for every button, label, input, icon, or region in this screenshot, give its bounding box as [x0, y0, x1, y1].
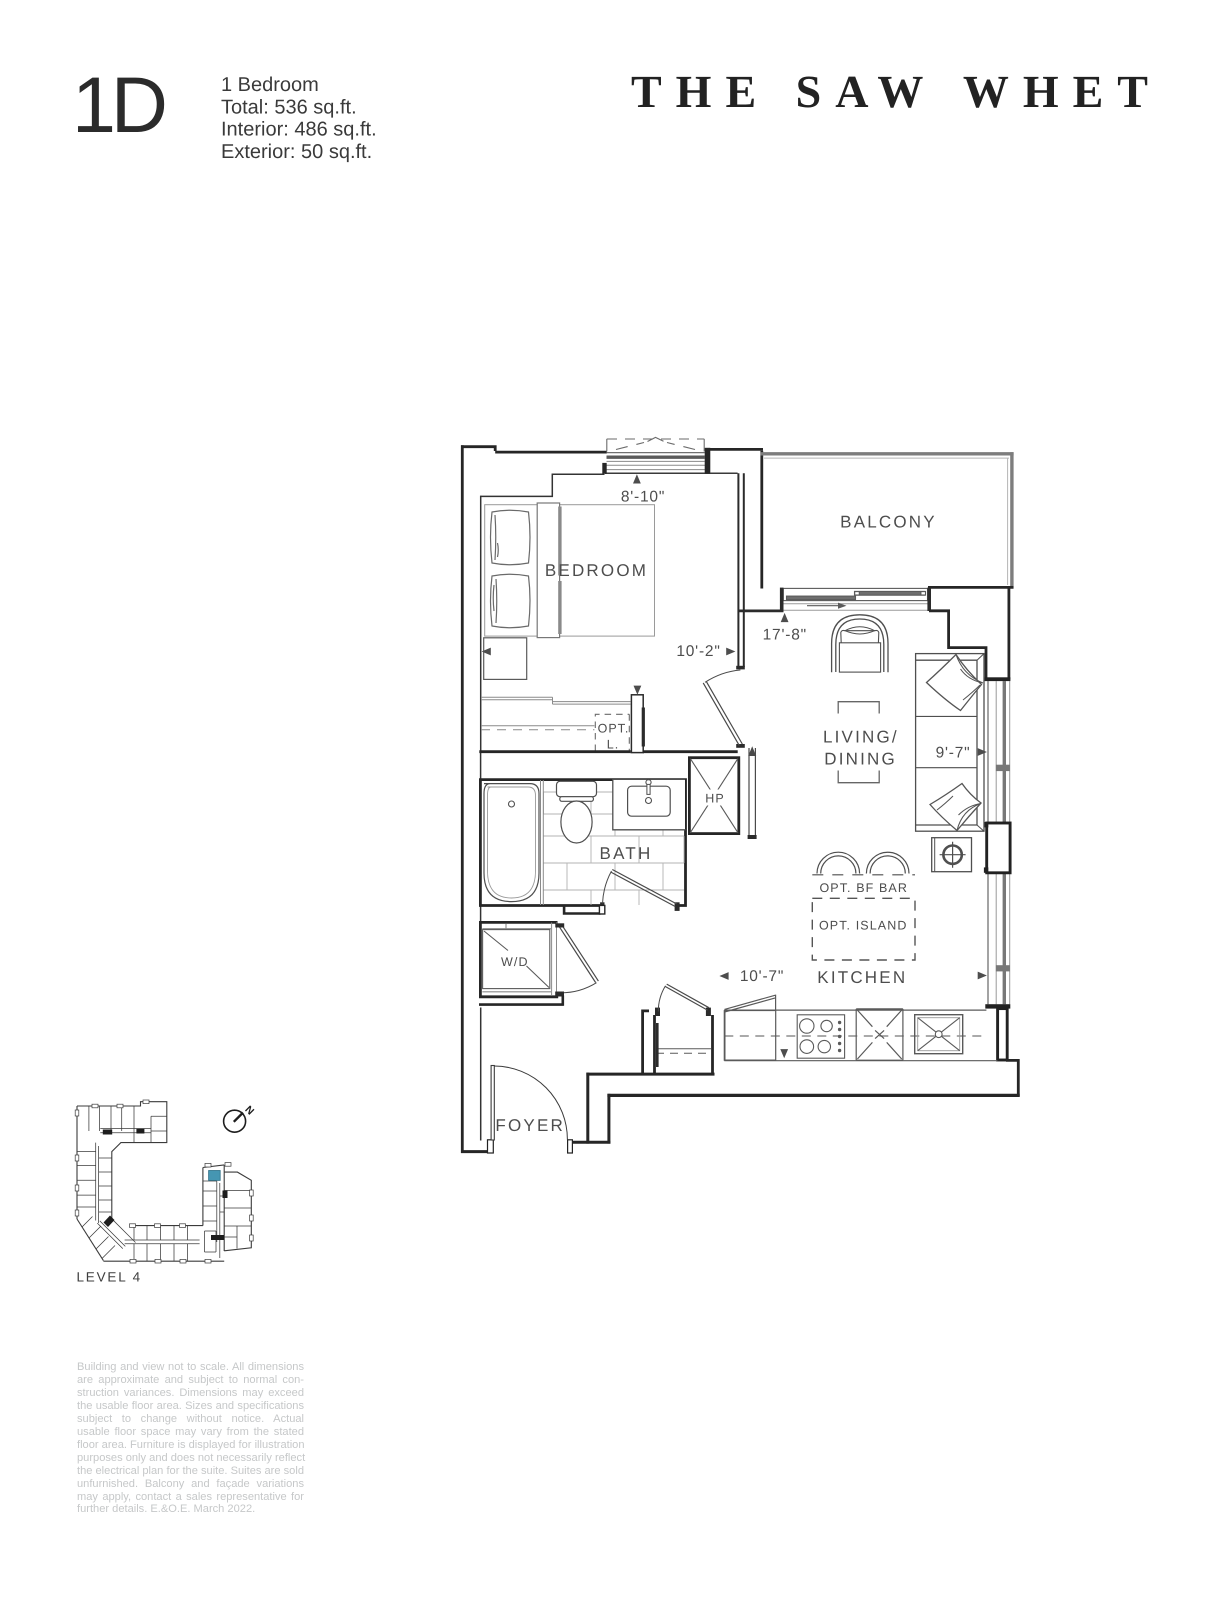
svg-text:10'-2": 10'-2" [676, 643, 720, 660]
svg-text:9'-7": 9'-7" [936, 744, 971, 761]
svg-text:L.: L. [607, 738, 619, 752]
svg-text:17'-8": 17'-8" [763, 627, 807, 644]
svg-text:W/D: W/D [501, 955, 529, 969]
svg-text:KITCHEN: KITCHEN [817, 968, 907, 987]
svg-text:OPT.: OPT. [598, 722, 630, 736]
svg-text:OPT. BF BAR: OPT. BF BAR [819, 881, 908, 895]
svg-text:LEVEL 4: LEVEL 4 [77, 1270, 142, 1285]
svg-text:HP: HP [705, 792, 725, 806]
svg-text:1D: 1D [72, 60, 165, 149]
svg-text:Exterior: 50 sq.ft.: Exterior: 50 sq.ft. [221, 141, 372, 163]
svg-text:1 Bedroom: 1 Bedroom [221, 74, 319, 96]
svg-text:Interior: 486 sq.ft.: Interior: 486 sq.ft. [221, 119, 377, 141]
svg-text:Total: 536 sq.ft.: Total: 536 sq.ft. [221, 96, 357, 118]
svg-text:10'-7": 10'-7" [740, 968, 784, 985]
svg-text:8'-10": 8'-10" [621, 489, 665, 506]
svg-text:BALCONY: BALCONY [840, 513, 937, 532]
svg-text:DINING: DINING [824, 750, 897, 769]
svg-text:OPT. ISLAND: OPT. ISLAND [819, 919, 908, 933]
svg-text:BEDROOM: BEDROOM [545, 561, 648, 580]
svg-text:THE SAW WHET: THE SAW WHET [631, 66, 1162, 117]
svg-text:LIVING/: LIVING/ [823, 728, 899, 747]
svg-text:FOYER: FOYER [495, 1116, 565, 1135]
svg-text:BATH: BATH [600, 844, 653, 863]
